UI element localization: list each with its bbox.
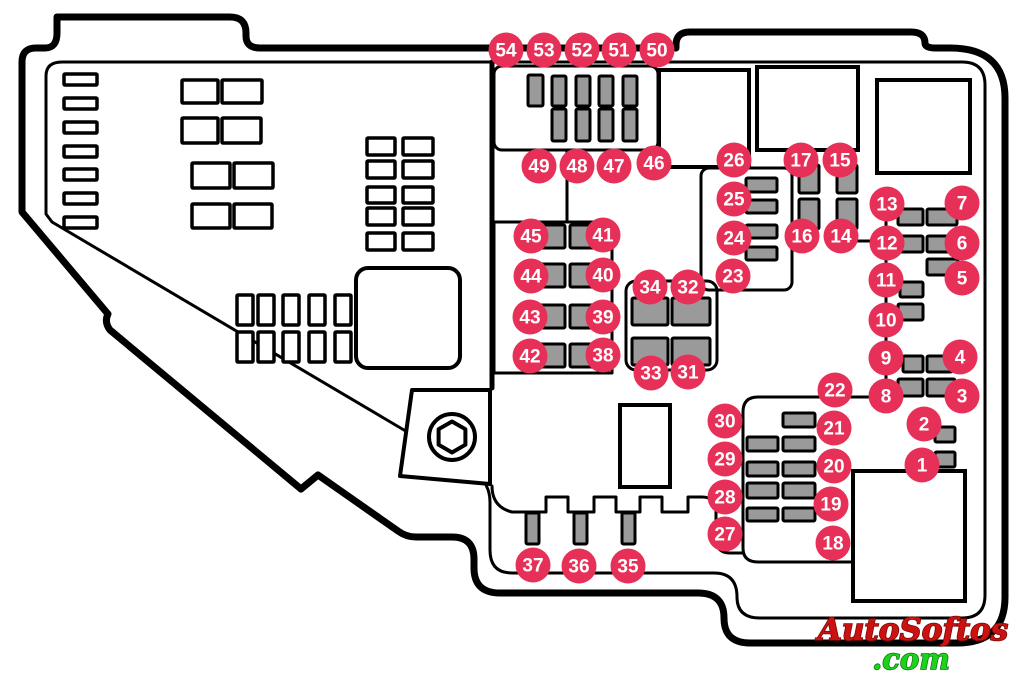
fuse (623, 109, 637, 141)
callout-label-28: 28 (714, 488, 735, 509)
fixture-slot (64, 98, 97, 109)
fixture-slot (403, 208, 433, 225)
callout-label-36: 36 (568, 557, 589, 578)
fuse (747, 462, 778, 476)
callout-label-46: 46 (643, 154, 664, 175)
fixture-slot (367, 208, 395, 225)
fuse (900, 282, 923, 297)
fuse (622, 513, 635, 544)
callout-label-8: 8 (881, 387, 892, 408)
callout-label-44: 44 (520, 267, 542, 288)
fixture-slot (222, 118, 261, 143)
callout-label-54: 54 (495, 41, 517, 62)
callout-label-49: 49 (528, 157, 549, 178)
watermark: AutoSoftos .com (815, 612, 1008, 676)
callout-label-50: 50 (646, 41, 667, 62)
callout-label-22: 22 (824, 381, 845, 402)
callout-label-14: 14 (830, 227, 852, 248)
callout-label-51: 51 (608, 41, 630, 62)
callout-label-5: 5 (957, 269, 968, 290)
fuse (747, 483, 778, 498)
callout-label-20: 20 (823, 457, 844, 478)
callout-label-39: 39 (592, 308, 613, 329)
fixture-slot (309, 295, 325, 325)
fixture-slot (403, 138, 433, 155)
fixture-slot (64, 217, 97, 228)
fuse (574, 513, 587, 544)
fixture-slot (237, 295, 253, 325)
fixture-slot (64, 169, 97, 180)
fixture-slot (283, 295, 299, 325)
callout-label-26: 26 (723, 151, 744, 172)
fixture-slot (367, 187, 395, 203)
fixture-slot (403, 161, 433, 178)
fixture-slot (367, 161, 395, 178)
callout-label-42: 42 (519, 347, 540, 368)
callout-label-6: 6 (957, 234, 968, 255)
fuse (528, 75, 543, 106)
callout-label-13: 13 (876, 195, 897, 216)
callout-label-24: 24 (723, 229, 745, 250)
fuse-box-diagram-page: 5453525150494847462617152524231614137126… (0, 0, 1024, 678)
fixture-slot (234, 163, 273, 188)
callout-label-47: 47 (603, 157, 624, 178)
callout-label-31: 31 (677, 363, 699, 384)
fuse (746, 247, 777, 260)
relay-box (877, 80, 970, 173)
fixture-slot (64, 146, 97, 157)
fuse (599, 76, 613, 106)
callout-label-10: 10 (875, 311, 896, 332)
fuse (903, 356, 923, 372)
relay-box (853, 471, 965, 601)
callout-label-11: 11 (876, 271, 897, 292)
fuse-box-diagram: 5453525150494847462617152524231614137126… (0, 0, 1024, 678)
fixture-slot (192, 204, 230, 228)
callout-label-32: 32 (677, 278, 698, 299)
fuse (747, 437, 778, 451)
callout-label-18: 18 (822, 534, 843, 555)
fuse (783, 413, 815, 427)
callout-label-21: 21 (823, 419, 845, 440)
fixture-slot (258, 295, 274, 325)
callout-label-23: 23 (722, 267, 743, 288)
fuse (599, 109, 613, 141)
fixture-slot (182, 80, 218, 103)
fixture-slot (283, 332, 299, 362)
fuse (526, 513, 539, 544)
fixture-slot (234, 204, 272, 228)
fixture-slot (258, 332, 274, 362)
fuse (783, 508, 815, 521)
callout-label-7: 7 (957, 194, 968, 215)
fuse (783, 462, 815, 476)
fixture-slot (182, 118, 218, 143)
callout-label-1: 1 (917, 456, 928, 477)
callout-label-27: 27 (714, 525, 735, 546)
fixture-slot (335, 332, 351, 362)
callout-label-9: 9 (881, 349, 892, 370)
fuse (747, 508, 778, 521)
callout-label-12: 12 (876, 234, 897, 255)
callout-label-53: 53 (533, 41, 554, 62)
callout-label-15: 15 (829, 151, 851, 172)
fixture-slot (367, 138, 395, 155)
fixture-slot (192, 163, 230, 188)
callout-label-38: 38 (592, 346, 613, 367)
fixture-slot (237, 332, 253, 362)
callout-label-41: 41 (592, 226, 614, 247)
callout-label-17: 17 (790, 151, 811, 172)
callout-label-43: 43 (519, 308, 540, 329)
component-box (356, 268, 460, 368)
callout-label-40: 40 (592, 266, 613, 287)
fuse (783, 483, 815, 498)
fixture-slot (335, 295, 351, 325)
fixture-slot (64, 74, 97, 85)
fixture-slot (367, 233, 395, 250)
fuse (552, 109, 566, 141)
callout-label-2: 2 (919, 415, 930, 436)
callout-label-34: 34 (639, 278, 661, 299)
relay-box (757, 67, 858, 150)
callout-label-33: 33 (640, 364, 661, 385)
fuse (576, 76, 590, 106)
fixture-slot (309, 332, 325, 362)
fuse (623, 76, 637, 106)
fuse (746, 178, 777, 192)
callout-label-25: 25 (723, 190, 745, 211)
watermark-line2: .com (872, 642, 950, 676)
fixture-slot (64, 193, 97, 204)
callout-label-29: 29 (714, 450, 735, 471)
relay-box (620, 405, 670, 487)
fixture-slot (222, 80, 262, 103)
callout-label-52: 52 (571, 41, 592, 62)
callout-label-45: 45 (520, 227, 542, 248)
callout-label-16: 16 (791, 227, 812, 248)
fuse (552, 76, 566, 106)
fixture-slot (403, 233, 433, 250)
callout-label-37: 37 (522, 556, 543, 577)
callout-label-48: 48 (566, 157, 587, 178)
callout-label-30: 30 (714, 412, 735, 433)
fixture-slot (403, 187, 433, 203)
callout-label-19: 19 (820, 495, 841, 516)
fixture-slot (64, 122, 97, 133)
callout-label-3: 3 (957, 387, 968, 408)
callout-label-4: 4 (955, 348, 966, 369)
fuse (576, 109, 590, 141)
callout-label-35: 35 (617, 557, 639, 578)
fuse (783, 437, 815, 451)
